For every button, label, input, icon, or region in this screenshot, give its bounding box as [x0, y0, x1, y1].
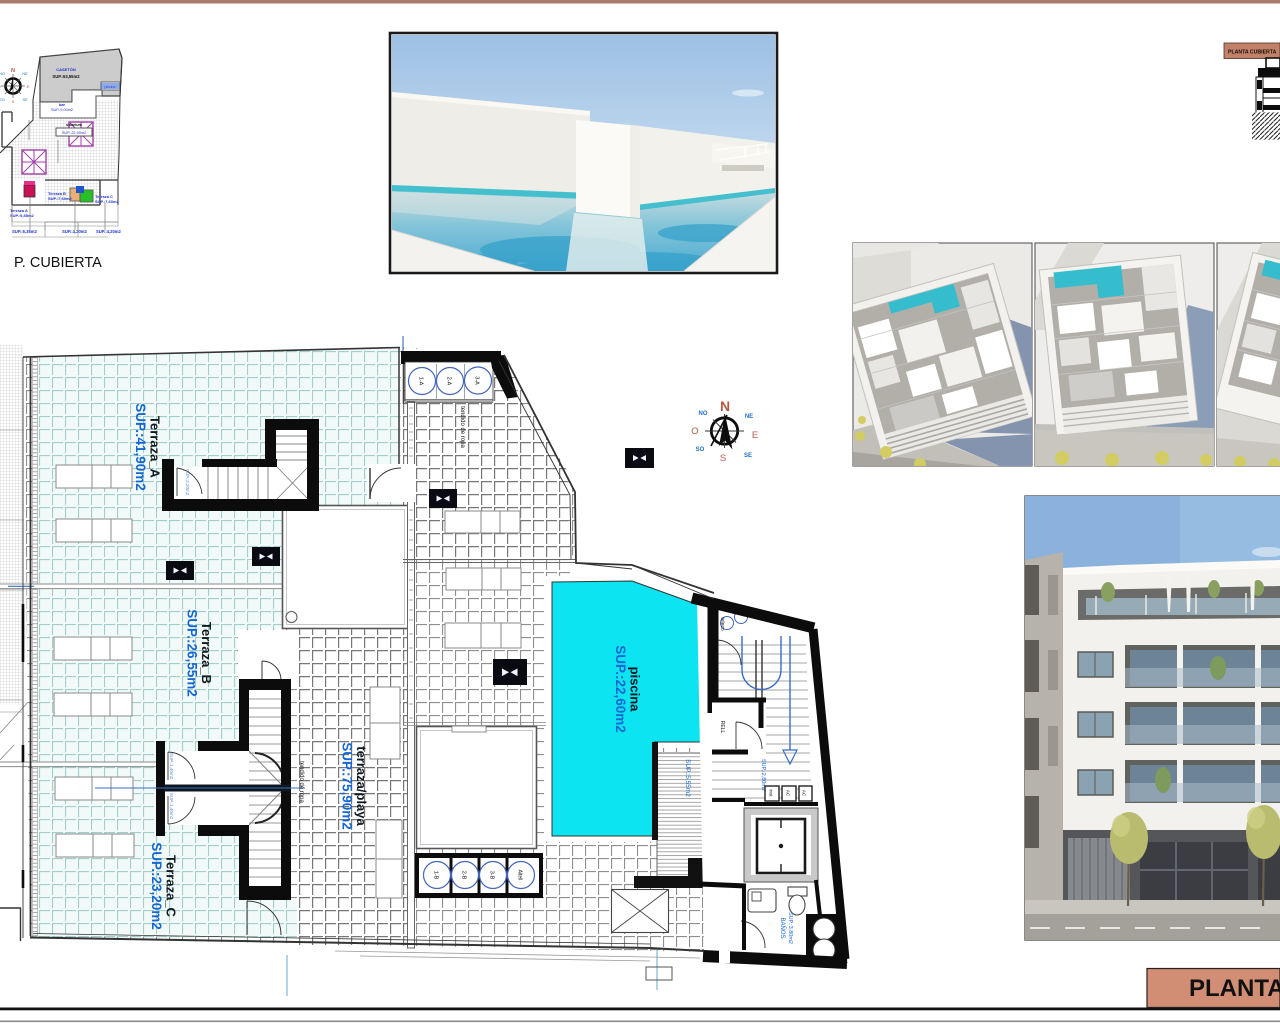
svg-text:SUP.:9,00m2: SUP.:9,00m2: [51, 108, 73, 112]
svg-text:solarium: solarium: [66, 123, 82, 127]
svg-text:1-B: 1-B: [433, 871, 439, 880]
svg-text:SUP.:7,60m2: SUP.:7,60m2: [48, 196, 72, 201]
svg-text:SUP.:1,40m2: SUP.:1,40m2: [169, 793, 174, 820]
svg-text:AC: AC: [786, 790, 791, 797]
svg-text:AC: AC: [802, 790, 807, 797]
svg-text:BAÑOS: BAÑOS: [779, 917, 786, 938]
svg-text:SUP.:4,20m2: SUP.:4,20m2: [62, 229, 88, 234]
svg-text:tendido de ropa: tendido de ropa: [298, 761, 304, 803]
svg-text:terraza/playa: terraza/playa: [354, 746, 369, 826]
svg-text:SUP.:41,90m2: SUP.:41,90m2: [133, 403, 148, 491]
svg-text:3-A: 3-A: [474, 376, 480, 385]
svg-text:E: E: [27, 84, 30, 89]
svg-text:SUP.:1,40m2: SUP.:1,40m2: [169, 753, 174, 780]
svg-text:Terraza_C: Terraza_C: [164, 855, 179, 918]
svg-text:N: N: [720, 398, 730, 414]
svg-text:SUP.:9,85m2: SUP.:9,85m2: [10, 213, 34, 218]
svg-text:Terraza_B: Terraza_B: [199, 622, 214, 684]
svg-text:SUP.:6,35m2: SUP.:6,35m2: [12, 229, 38, 234]
svg-text:2-A: 2-A: [446, 377, 452, 386]
svg-text:SUP.:5,55m2: SUP.:5,55m2: [684, 759, 691, 797]
svg-text:SUP.:3,80m2: SUP.:3,80m2: [787, 912, 793, 944]
svg-text:CASETÓN: CASETÓN: [56, 67, 76, 72]
svg-text:SO: SO: [696, 447, 705, 453]
svg-text:piscina: piscina: [105, 85, 116, 89]
svg-text:PLANTA CUBIERTA: PLANTA CUBIERTA: [1228, 50, 1277, 56]
svg-text:NO: NO: [699, 411, 708, 417]
svg-text:SUP.:22,60m2: SUP.:22,60m2: [613, 645, 628, 733]
svg-text:PLANTA C: PLANTA C: [1189, 975, 1280, 1002]
svg-text:E: E: [752, 430, 758, 441]
svg-text:piscina: piscina: [628, 667, 643, 713]
svg-text:S: S: [12, 99, 15, 104]
svg-text:1-A: 1-A: [418, 377, 424, 386]
svg-text:tendido de ropa: tendido de ropa: [459, 406, 465, 448]
svg-text:SO: SO: [0, 97, 5, 102]
svg-text:RELL: RELL: [719, 721, 725, 734]
svg-text:NE: NE: [745, 414, 753, 420]
svg-text:N: N: [11, 68, 15, 74]
svg-text:SUP.:2,20m2: SUP.:2,20m2: [185, 469, 190, 496]
svg-text:SUP.:4,20m2: SUP.:4,20m2: [96, 229, 122, 234]
svg-text:SUP.:22,90m2: SUP.:22,90m2: [62, 131, 86, 135]
svg-text:inst: inst: [769, 789, 774, 797]
svg-text:O: O: [0, 84, 1, 89]
svg-text:3-B: 3-B: [489, 871, 495, 880]
svg-text:2-B: 2-B: [461, 871, 467, 880]
svg-text:SUP.:23,20m2: SUP.:23,20m2: [149, 842, 164, 930]
svg-text:SUP.:26,55m2: SUP.:26,55m2: [185, 609, 200, 697]
svg-text:NE: NE: [22, 71, 28, 76]
svg-text:P. CUBIERTA: P. CUBIERTA: [14, 255, 102, 271]
svg-text:SE: SE: [22, 97, 28, 102]
svg-text:NO: NO: [0, 71, 5, 76]
svg-text:SE: SE: [744, 453, 752, 459]
svg-text:SUP.:75,90m2: SUP.:75,90m2: [340, 742, 355, 830]
svg-text:Terraza_A: Terraza_A: [148, 416, 163, 479]
svg-text:SUP.:7,60m2: SUP.:7,60m2: [95, 199, 119, 204]
svg-text:bar: bar: [59, 102, 66, 107]
svg-text:S: S: [720, 453, 726, 464]
svg-text:Altell: Altell: [517, 870, 523, 881]
svg-text:teleco: teleco: [719, 617, 725, 631]
svg-text:O: O: [691, 426, 698, 437]
svg-text:SUP.:63,55m2: SUP.:63,55m2: [52, 74, 80, 79]
